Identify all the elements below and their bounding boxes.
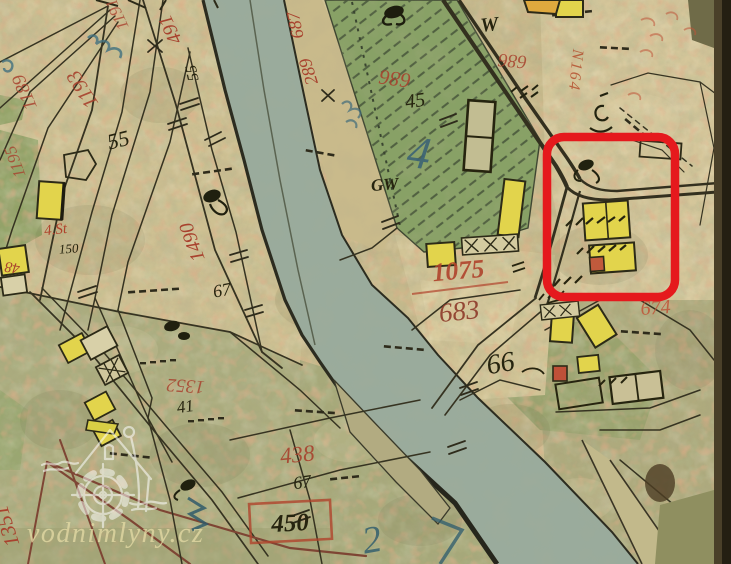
svg-text:W: W — [479, 13, 500, 37]
svg-text:450: 450 — [270, 509, 310, 538]
svg-text:4.St: 4.St — [43, 221, 68, 239]
svg-text:150: 150 — [58, 240, 79, 256]
svg-text:1075: 1075 — [431, 254, 485, 287]
svg-text:41: 41 — [175, 396, 194, 417]
svg-text:48: 48 — [3, 258, 21, 276]
svg-text:1352: 1352 — [165, 374, 205, 398]
svg-text:66: 66 — [484, 346, 517, 381]
svg-text:683: 683 — [437, 294, 480, 328]
svg-text:686: 686 — [497, 49, 528, 72]
svg-text:GW: GW — [370, 174, 401, 195]
svg-text:vodnimlyny.cz: vodnimlyny.cz — [27, 518, 204, 549]
svg-text:438: 438 — [279, 440, 316, 469]
svg-text:686: 686 — [377, 65, 412, 93]
svg-text:45: 45 — [404, 89, 427, 114]
